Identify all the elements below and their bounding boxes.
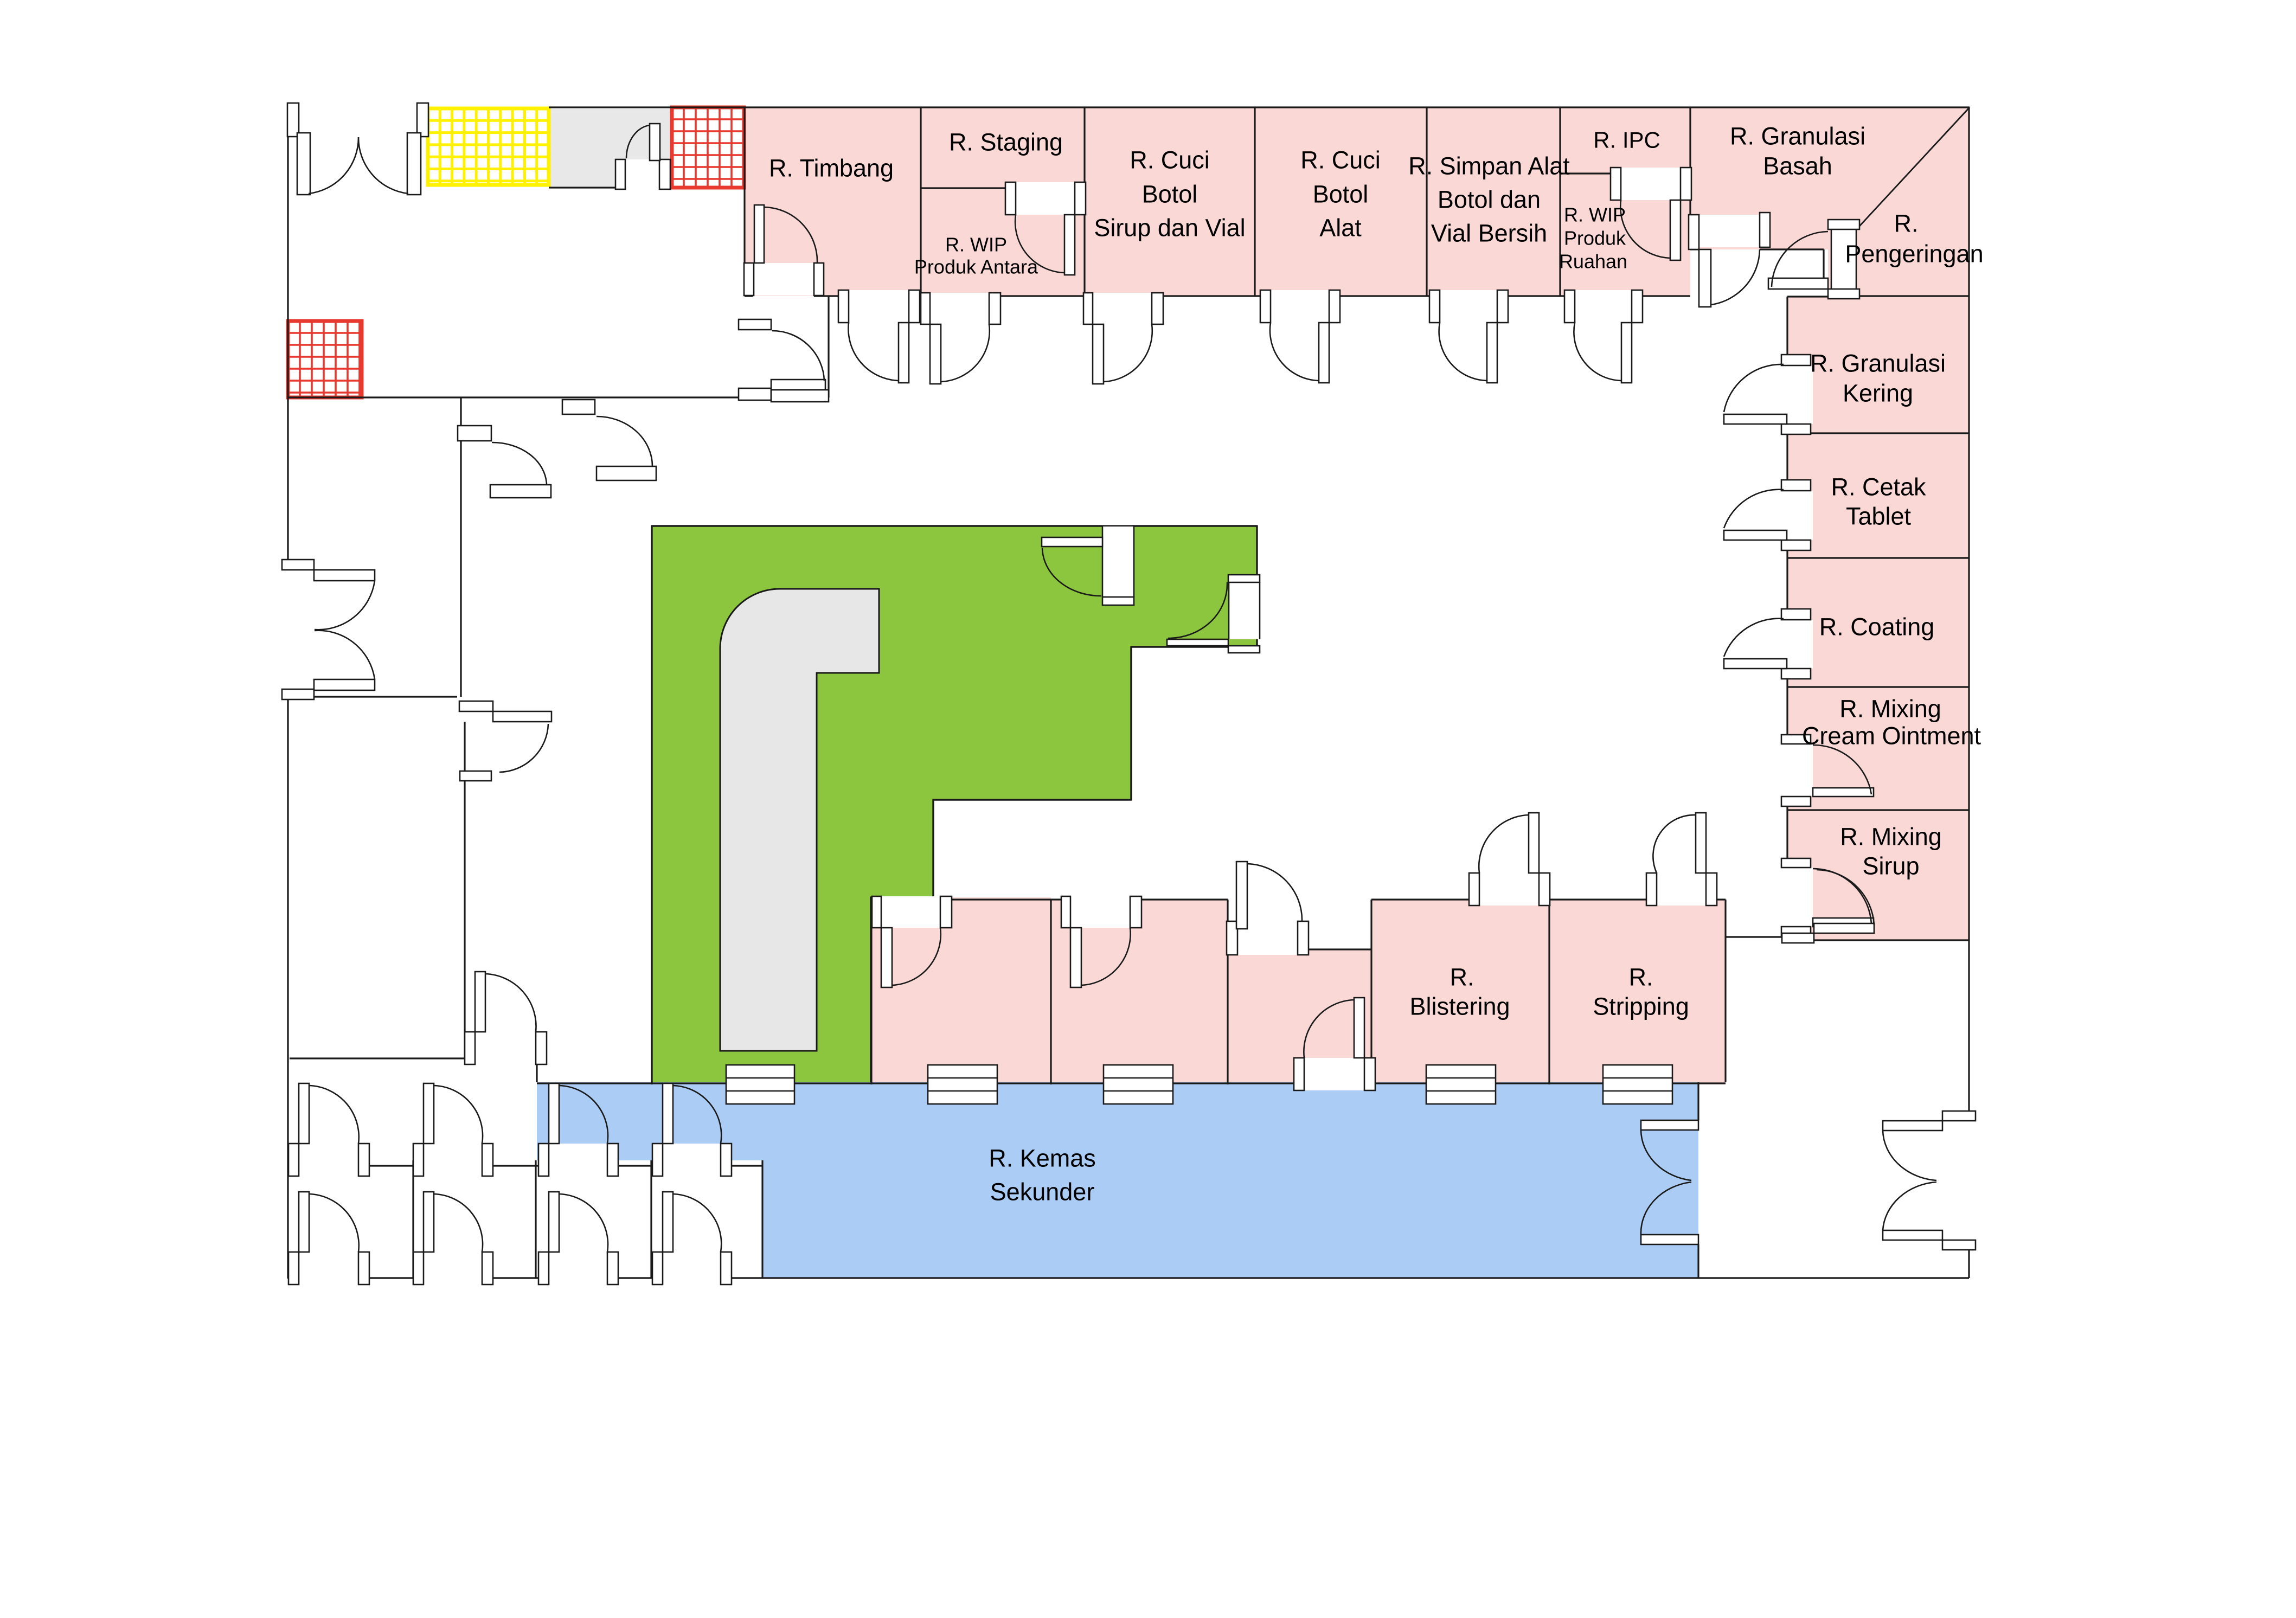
svg-text:Sirup: Sirup [1862,852,1919,880]
svg-text:Botol: Botol [1142,181,1198,208]
svg-text:Botol: Botol [1313,181,1369,208]
svg-text:R. Granulasi: R. Granulasi [1810,350,1946,377]
svg-text:R. WIP: R. WIP [945,234,1007,256]
svg-text:Pengeringan: Pengeringan [1845,240,1983,268]
svg-text:R.: R. [1894,210,1919,237]
svg-text:Alat: Alat [1319,214,1362,242]
svg-text:R. IPC: R. IPC [1593,127,1660,153]
svg-text:Kering: Kering [1843,380,1913,407]
svg-text:Produk: Produk [1564,227,1626,249]
svg-text:Botol dan: Botol dan [1438,186,1541,214]
svg-text:Produk Antara: Produk Antara [914,256,1038,278]
svg-text:R. Simpan Alat: R. Simpan Alat [1408,152,1570,180]
svg-text:Sekunder: Sekunder [990,1178,1095,1206]
svg-text:R. Cetak: R. Cetak [1831,473,1926,501]
svg-text:R. Cuci: R. Cuci [1130,146,1210,174]
svg-text:R. Timbang: R. Timbang [769,155,894,182]
svg-text:Sirup dan Vial: Sirup dan Vial [1094,214,1245,242]
svg-text:R. Staging: R. Staging [949,129,1063,156]
svg-text:Stripping: Stripping [1593,993,1689,1020]
svg-text:Tablet: Tablet [1846,503,1912,530]
svg-text:R. Cuci: R. Cuci [1300,146,1381,174]
svg-text:R. Mixing: R. Mixing [1839,695,1941,723]
svg-text:R. Kemas: R. Kemas [989,1145,1096,1172]
svg-text:R. WIP: R. WIP [1564,204,1626,226]
svg-text:Basah: Basah [1763,152,1832,180]
svg-text:Vial Bersih: Vial Bersih [1431,220,1547,247]
svg-text:R. Mixing: R. Mixing [1840,823,1942,851]
svg-text:Cream Ointment: Cream Ointment [1802,722,1981,750]
svg-text:R.: R. [1629,964,1653,991]
svg-text:Blistering: Blistering [1409,993,1510,1020]
svg-text:R. Granulasi: R. Granulasi [1730,123,1865,150]
svg-text:Ruahan: Ruahan [1559,251,1627,273]
svg-text:R. Coating: R. Coating [1819,613,1935,641]
svg-text:R.: R. [1450,964,1474,991]
